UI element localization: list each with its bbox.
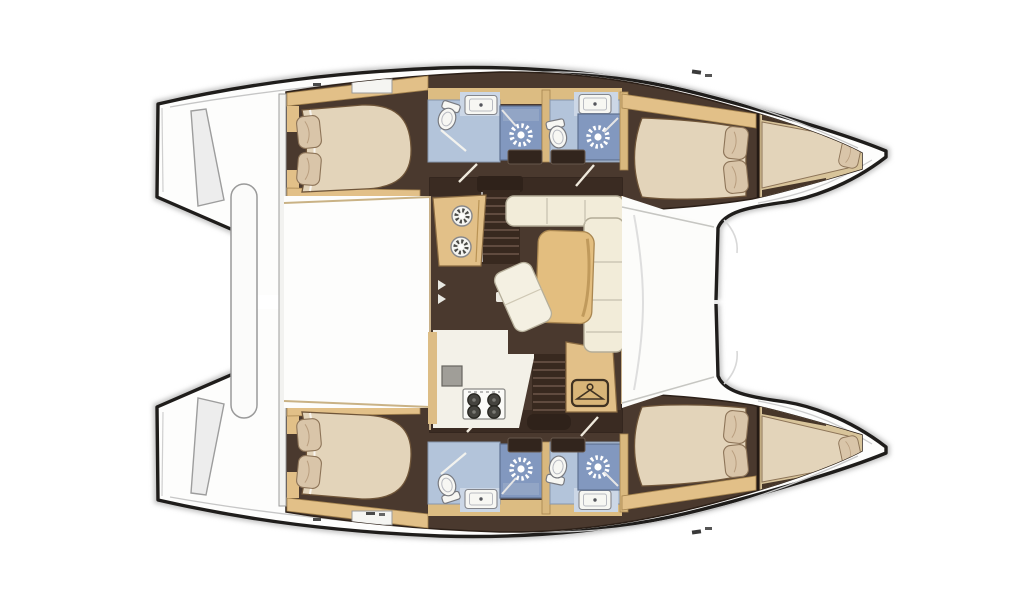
stove-burner: [468, 394, 480, 406]
companionway-hatch: [508, 438, 542, 452]
companionway-stairs-starboard: [527, 354, 571, 430]
saloon: [428, 150, 624, 452]
deck-hardware-mark: [379, 513, 385, 516]
trampoline-shading: [724, 220, 737, 253]
floor-plan-canvas: [0, 0, 1024, 600]
galley-side-cabinet: [428, 332, 437, 424]
companionway-hatch: [551, 150, 585, 164]
galley-round-burner: [451, 237, 471, 257]
cockpit-deck: [284, 196, 430, 408]
davit-bar: [231, 184, 257, 418]
stair-landing: [527, 414, 571, 430]
companionway-hatch: [551, 438, 585, 452]
stove-burner: [468, 406, 480, 418]
stair-well: [532, 354, 566, 416]
trampoline-shading: [724, 351, 737, 384]
foredeck: [622, 196, 714, 408]
deck-hardware-mark: [366, 512, 375, 515]
stove: [463, 389, 505, 419]
companionway-hatch: [508, 150, 542, 164]
boat-floor-plan: [0, 0, 1024, 600]
stove-burner: [488, 406, 500, 418]
stair-landing: [477, 176, 523, 192]
stove-burner: [488, 394, 500, 406]
cockpit-floor: [284, 196, 430, 408]
galley-appliance: [442, 366, 462, 386]
trampoline: [724, 220, 737, 384]
galley-round-burner: [452, 206, 472, 226]
